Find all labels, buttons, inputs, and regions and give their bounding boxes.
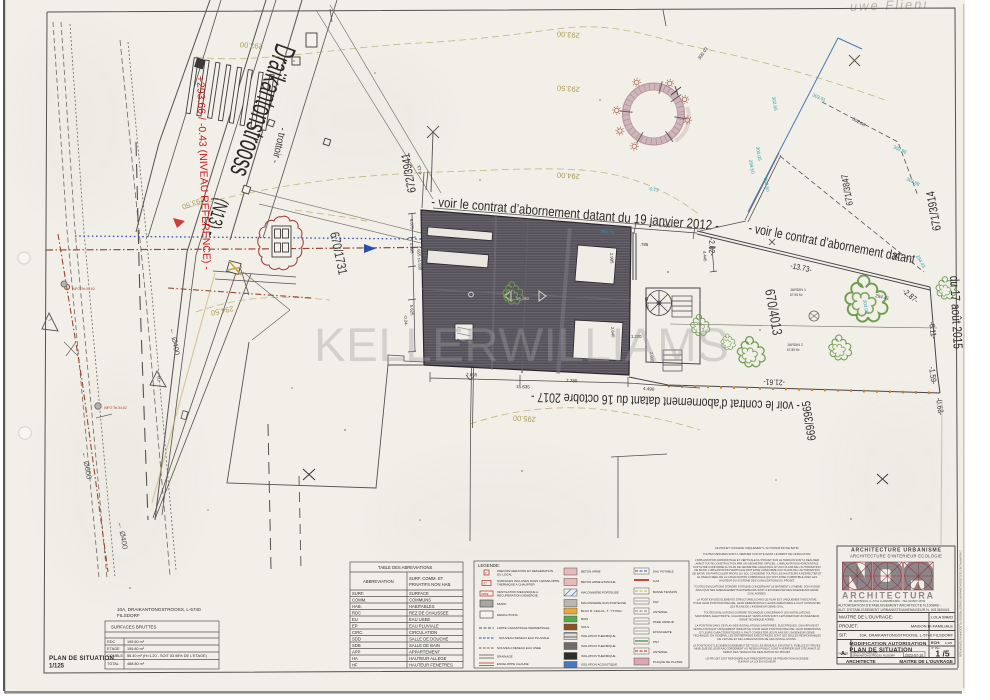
svg-text:SDD: SDD	[352, 637, 361, 642]
svg-text:ANTENNE: ANTENNE	[653, 610, 667, 614]
svg-text:AUT. D'ETABLISSEMENT URBANISTE: AUT. D'ETABLISSEMENT URBANISTE/AMENAGEUR…	[838, 608, 950, 612]
svg-text:FILSDORF: FILSDORF	[117, 613, 140, 618]
svg-text:BETON ARME ETANCHE: BETON ARME ETANCHE	[581, 580, 616, 584]
svg-text:CIVIL AGREES.: CIVIL AGREES.	[747, 591, 766, 595]
svg-text:ET: ET	[484, 581, 488, 585]
svg-text:AINSI QUE SES AMENAGEMENTS EXT: AINSI QUE SES AMENAGEMENTS EXTERIEURS SO…	[696, 588, 819, 592]
svg-text:HF: HF	[352, 663, 358, 668]
svg-text:HAUTEUR DU SYSTEME DES CANALIS: HAUTEUR DU SYSTEME DES CANALISATIONS DU …	[719, 578, 795, 582]
svg-text:SDB: SDB	[352, 643, 361, 648]
svg-text:ANTENNE: ANTENNE	[653, 650, 667, 654]
svg-text:CIRCULATION: CIRCULATION	[409, 630, 437, 635]
svg-text:PARE VAPEUR: PARE VAPEUR	[653, 620, 675, 624]
svg-text:SUIVANT LA LOI EN VIGUEUR.: SUIVANT LA LOI EN VIGUEUR.	[738, 660, 777, 664]
svg-text:16.160: 16.160	[516, 296, 529, 301]
svg-text:56.40 m² (H>1.20 - SOIT 53.98%: 56.40 m² (H>1.20 - SOIT 53.98% DE L'ETAG…	[127, 654, 208, 658]
svg-text:BETON ARME: BETON ARME	[581, 570, 601, 574]
svg-text:BOIS: BOIS	[581, 617, 588, 621]
svg-text:ABBREVIATION: ABBREVIATION	[363, 579, 394, 584]
svg-text:ISOLATION THERMIQUE: ISOLATION THERMIQUE	[581, 644, 616, 648]
svg-text:ETAGE: ETAGE	[107, 647, 120, 651]
svg-text:11.330: 11.330	[644, 297, 650, 310]
svg-text:6.075: 6.075	[409, 219, 415, 230]
svg-text:1/125: 1/125	[49, 664, 65, 670]
svg-text:195.80 m²: 195.80 m²	[127, 647, 145, 651]
svg-text:15.635: 15.635	[516, 384, 530, 389]
svg-text:488.80 m²: 488.80 m²	[127, 662, 145, 666]
svg-text:COMM.: COMM.	[352, 598, 366, 603]
svg-text:1B, AM PESCH | L-5741 LUXEMBOU: 1B, AM PESCH | L-5741 LUXEMBOURG - TEL.6…	[849, 599, 926, 603]
svg-text:HAUTEUR FENETRES: HAUTEUR FENETRES	[409, 663, 453, 668]
svg-text:ET LEURS CARACTERISTIQUES IL F: ET LEURS CARACTERISTIQUES IL FAUT CONSUL…	[699, 630, 815, 634]
svg-text:NOUVEAU RESEAU EAU PLUVIALE: NOUVEAU RESEAU EAU PLUVIALE	[499, 636, 549, 640]
svg-text:2.995: 2.995	[609, 253, 615, 264]
svg-text:67.85 M²: 67.85 M²	[787, 348, 800, 352]
svg-text:LOLA IMMO: LOLA IMMO	[931, 615, 953, 620]
svg-text:SALLE DE BAIN: SALLE DE BAIN	[409, 643, 440, 648]
svg-text:SIT:: SIT:	[839, 633, 847, 638]
svg-text:DU LOCAL: DU LOCAL	[497, 573, 512, 577]
svg-text:AUTORISATION D'ETABLISSEMENT A: AUTORISATION D'ETABLISSEMENT ARCHITECTE …	[838, 604, 942, 608]
svg-text:HAB.: HAB.	[352, 604, 362, 609]
svg-text:SURF. COMM. ET: SURF. COMM. ET	[409, 576, 444, 581]
svg-text:ETANCHEITE: ETANCHEITE	[653, 630, 672, 634]
svg-text:VMRE: VMRE	[481, 592, 489, 596]
svg-text:MACONNERIE NON PORTEUSE: MACONNERIE NON PORTEUSE	[581, 601, 626, 605]
svg-text:LIMITE CADASTRALE PERIMETRALE: LIMITE CADASTRALE PERIMETRALE	[497, 626, 550, 630]
svg-text:TABLE DES ABREVIATIONS: TABLE DES ABREVIATIONS	[378, 565, 433, 570]
svg-text:EU: EU	[352, 617, 358, 622]
svg-text:4.490: 4.490	[643, 386, 655, 392]
svg-text:ENVELOPPE CHAUDE: ENVELOPPE CHAUDE	[497, 662, 529, 666]
svg-text:KELLERWILLIAMS: KELLERWILLIAMS	[314, 319, 729, 372]
svg-text:DE BATIR. L'IMPLANTATION VERTI: DE BATIR. L'IMPLANTATION VERTICALE DOIT …	[694, 568, 819, 572]
svg-text:293.50: 293.50	[557, 83, 581, 94]
svg-text:.785: .785	[640, 242, 649, 247]
svg-text:7.780: 7.780	[566, 378, 578, 383]
svg-text:POUR LEUR POSITION PRECISE, LE: POUR LEUR POSITION PRECISE, LEUR DIMENSI…	[694, 601, 821, 605]
svg-text:SURFACE: SURFACE	[409, 591, 429, 596]
svg-text:MAISON BI-FAMILIALE: MAISON BI-FAMILIALE	[911, 624, 954, 629]
svg-text:10A, DRAIKANTONGSTROOSS, L-574: 10A, DRAIKANTONGSTROOSS, L-5740 FILSDORF	[859, 633, 953, 638]
svg-text:298.71: 298.71	[600, 229, 615, 235]
svg-text:JARDIN 1: JARDIN 1	[790, 288, 806, 292]
svg-text:APP: APP	[352, 650, 361, 655]
svg-text:NOUVEAU RESEAU EAU USEE: NOUVEAU RESEAU EAU USEE	[497, 646, 541, 650]
svg-text:L'IMPLANTATION HORIZONTALE ET: L'IMPLANTATION HORIZONTALE ET VERTICALE …	[695, 558, 819, 562]
svg-text:HABITABLES: HABITABLES	[409, 604, 435, 609]
svg-text:MURS: MURS	[497, 602, 506, 606]
svg-text:ECH:: ECH:	[931, 641, 940, 645]
svg-text:LE NIVEAU REEL DE LA CANALISAT: LE NIVEAU REEL DE LA CANALISATION COMMUN…	[697, 575, 818, 579]
svg-text:295.00: 295.00	[513, 413, 537, 424]
svg-text:MACONNERIE PORTEUSE: MACONNERIE PORTEUSE	[581, 591, 619, 595]
svg-text:COMMUNS: COMMUNS	[409, 598, 431, 603]
svg-text:5.625: 5.625	[409, 305, 415, 316]
svg-text:APPARTEMENT: APPARTEMENT	[409, 650, 440, 655]
svg-text:HAUTEUR ALLEGE: HAUTEUR ALLEGE	[409, 656, 447, 661]
svg-text:DEBUT DES TRAVAUX DE REALISATI: DEBUT DES TRAVAUX DE REALISATION DU PROJ…	[723, 650, 791, 654]
svg-text:EAU USEE: EAU USEE	[409, 617, 430, 622]
svg-text:AINSI QUE DE LEUR RACCORDEMENT: AINSI QUE DE LEUR RACCORDEMENT AU RESEAU…	[694, 647, 820, 651]
svg-text:LEGENDE:: LEGENDE:	[478, 563, 500, 568]
svg-text:EP: EP	[352, 624, 358, 629]
svg-text:LA POSITION DES ELEMENTS STRUC: LA POSITION DES ELEMENTS STRUCTURELS DAN…	[697, 598, 818, 602]
svg-text:FICHIER: FICHIER	[839, 653, 849, 656]
svg-text:RDC: RDC	[107, 640, 115, 644]
svg-text:LA POSITION ET LE DIMENSIONNEM: LA POSITION ET LE DIMENSIONNEMENT DE TOU…	[693, 643, 821, 647]
svg-text:293.00: 293.00	[557, 29, 581, 40]
svg-text:THERMIQUE A CHAUFFER: THERMIQUE A CHAUFFER	[497, 583, 536, 587]
svg-text:RDC: RDC	[352, 611, 361, 616]
svg-text:LES PLANS DE L'INGENIEUR GENIE: LES PLANS DE L'INGENIEUR GENIE CIVIL.	[730, 604, 784, 608]
svg-text:COMBLE: COMBLE	[107, 654, 124, 658]
svg-text:PROJET:: PROJET:	[839, 624, 858, 629]
svg-text:EAU POTABLE: EAU POTABLE	[653, 570, 674, 574]
svg-text:ARCHITECTURE D'INTERIEUR ECOLO: ARCHITECTURE D'INTERIEUR ECOLOGIE	[850, 554, 942, 559]
svg-text:ISOLATION ACOUSTIQUE: ISOLATION ACOUSTIQUE	[581, 663, 617, 667]
svg-text:TOUTES EVALUATIONS D'ORDRE STA: TOUTES EVALUATIONS D'ORDRE STATIQUE CONC…	[694, 585, 820, 589]
svg-text:AVANT TOUTE CONSTRUCTION PAR U: AVANT TOUTE CONSTRUCTION PAR UN GEOMETRE…	[696, 561, 819, 565]
svg-text:DRAINAGE: DRAINAGE	[497, 655, 513, 659]
svg-text:VENTILATION EST UNIQUEMENT IND: VENTILATION EST UNIQUEMENT INDICATIVE. P…	[693, 627, 821, 631]
svg-text:DEMOLITIONS: DEMOLITIONS	[497, 613, 518, 617]
svg-text:CIRC.: CIRC.	[352, 630, 363, 635]
svg-text:V: V	[485, 571, 487, 575]
svg-text:10A, DRAIKANTONGSTROOSS, L-574: 10A, DRAIKANTONGSTROOSS, L-5740	[117, 607, 201, 612]
svg-text:REZ DE CHAUSSEE: REZ DE CHAUSSEE	[409, 611, 449, 616]
svg-text:CE PROJET CONCEDE UNIQUEMENT L: CE PROJET CONCEDE UNIQUEMENT L'AUTORISAT…	[715, 546, 800, 550]
svg-text:SOLS: SOLS	[581, 625, 589, 629]
svg-text:SURFACES BRUTTES: SURFACES BRUTTES	[111, 625, 156, 630]
svg-text:-2.02-: -2.02-	[707, 238, 717, 257]
svg-text:TOTAL: TOTAL	[107, 662, 119, 666]
svg-text:DRAIKANTONGSTROOSS, FILSDORF: DRAIKANTONGSTROOSS, FILSDORF	[853, 655, 896, 658]
svg-text:SURF.: SURF.	[352, 591, 364, 596]
svg-text:PNT: PNT	[653, 640, 659, 644]
svg-text:P&T: P&T	[653, 600, 659, 604]
svg-text:MAITRE DE L'OUVRAGE: MAITRE DE L'OUVRAGE	[899, 659, 953, 664]
svg-text:TOUTES EVALUATIONS D'ORDRE TEC: TOUTES EVALUATIONS D'ORDRE TECHNIQUE CON…	[704, 611, 810, 615]
svg-text:LA POSITION DANS CE PLAN DES I: LA POSITION DANS CE PLAN DES INSTALLATIO…	[695, 624, 819, 628]
svg-text:67.95 M²: 67.95 M²	[790, 293, 803, 297]
svg-text:GAZ: GAZ	[653, 579, 659, 583]
svg-text:1 /5: 1 /5	[935, 649, 949, 659]
svg-text:1/125: 1/125	[945, 641, 952, 645]
svg-text:2023-07-10: 2023-07-10	[905, 653, 923, 657]
svg-text:4.445: 4.445	[702, 251, 708, 262]
svg-text:ISOLATION THERMIQUE: ISOLATION THERMIQUE	[581, 634, 616, 638]
svg-text:294.00: 294.00	[557, 170, 581, 181]
svg-text:PRIVATIFS NON HAB.: PRIVATIFS NON HAB.	[409, 582, 451, 587]
svg-text:DOIT ETRE CONFORME AU PLAN DE: DOIT ETRE CONFORME AU PLAN DE GEOMETRE C…	[693, 565, 820, 569]
svg-text:INFO Tel.54.62: INFO Tel.54.62	[72, 287, 95, 291]
svg-text:ISOLATION THERMIQUE: ISOLATION THERMIQUE	[581, 654, 616, 658]
svg-text:RECUPERATION D'ENERGIE: RECUPERATION D'ENERGIE	[497, 594, 538, 598]
svg-text:PLAQUE DE PLATRE: PLAQUE DE PLATRE	[653, 660, 682, 664]
svg-text:GENIE TECHNIQUE AGREE.: GENIE TECHNIQUE AGREE.	[739, 617, 775, 621]
svg-text:Z:\NDM\PROJETS\2023\10A DRAIKA: Z:\NDM\PROJETS\2023\10A DRAIKANTONGSTROO…	[959, 550, 963, 657]
svg-text:BLOC B. CELLUL. T. "YTONG": BLOC B. CELLUL. T. "YTONG"	[581, 609, 623, 613]
svg-text:JARDIN 2: JARDIN 2	[787, 343, 803, 347]
svg-text:7.855: 7.855	[466, 372, 478, 377]
svg-text:ARCHITECTE: ARCHITECTE	[846, 659, 876, 664]
svg-text:TOUTES MESURES SONT A VERIFIER: TOUTES MESURES SONT A VERIFIER SUR SITE …	[703, 552, 811, 556]
svg-text:LE PROJET DOIT REPONDRE AUX PR: LE PROJET DOIT REPONDRE AUX PRESCRIPTION…	[706, 656, 809, 660]
svg-text:EAU PLUVIALE: EAU PLUVIALE	[409, 624, 439, 629]
svg-text:195.60 m²: 195.60 m²	[127, 640, 145, 644]
svg-text:-21.61-: -21.61-	[763, 377, 785, 387]
svg-text:SANITAIRES, ELECTRICITE, CHAUF: SANITAIRES, ELECTRICITE, CHAUFFAGE ET VE…	[695, 614, 819, 618]
svg-text:MAITRE DE L'OUVRAGE:: MAITRE DE L'OUVRAGE:	[839, 615, 893, 620]
svg-text:DE L'ETUDE ET DE LA REALISATIO: DE L'ETUDE ET DE LA REALISATION DE CES I…	[717, 637, 796, 641]
svg-text:HA: HA	[352, 656, 358, 661]
svg-text:BASSE TENSION: BASSE TENSION	[653, 590, 677, 594]
svg-text:DE BATIR. EN PARTICULIER PROFI: DE BATIR. EN PARTICULIER PROFIL DU SOL C…	[692, 572, 822, 576]
svg-text:0.995: 0.995	[409, 243, 415, 254]
svg-text:SALLE DE DOUCHE: SALLE DE DOUCHE	[409, 637, 449, 642]
svg-text:TECHNIQUE. EN GENERAL LES ENTR: TECHNIQUE. EN GENERAL LES ENTREPRISES EX…	[693, 634, 821, 638]
